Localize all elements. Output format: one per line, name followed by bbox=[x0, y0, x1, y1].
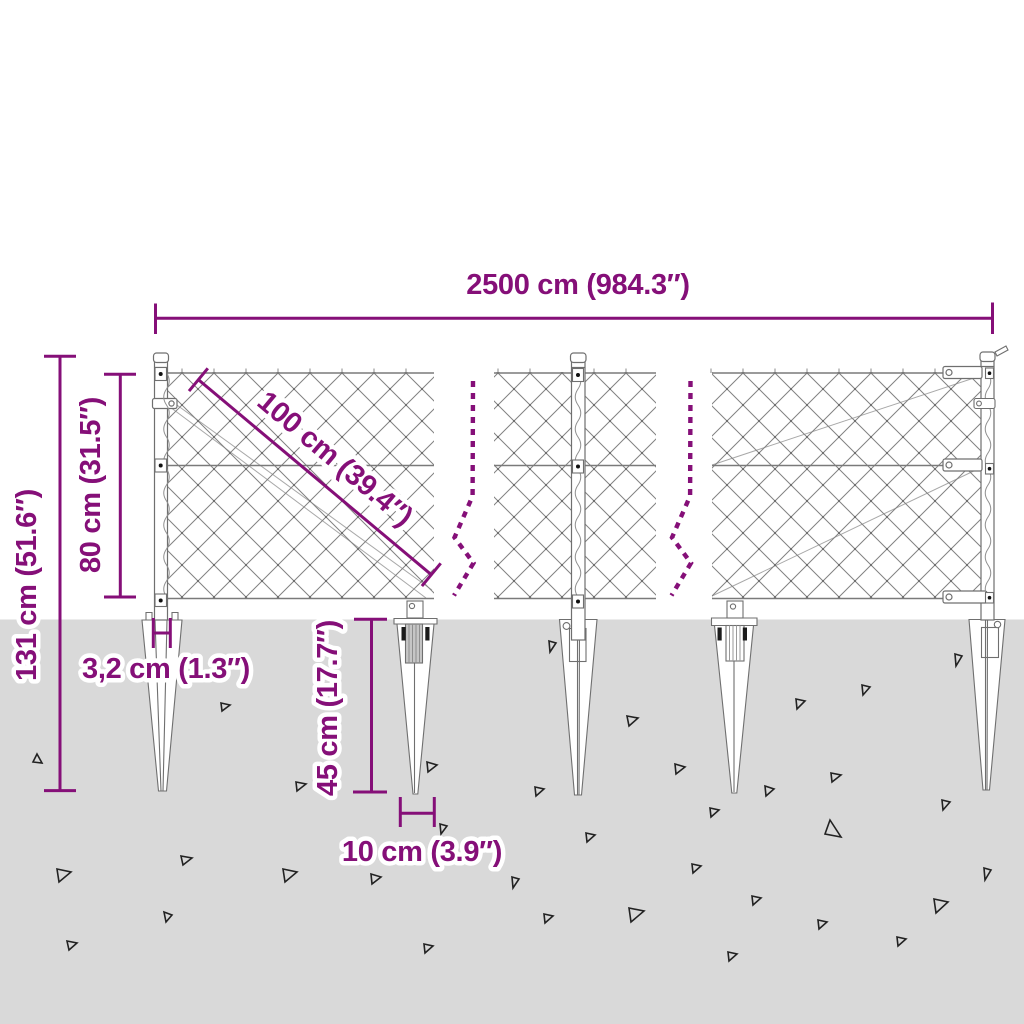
svg-text:45 cm (17.7″): 45 cm (17.7″) bbox=[312, 620, 344, 796]
svg-text:131 cm (51.6″): 131 cm (51.6″) bbox=[11, 489, 43, 681]
svg-text:80 cm (31.5″): 80 cm (31.5″) bbox=[75, 397, 107, 573]
svg-text:10 cm (3.9″): 10 cm (3.9″) bbox=[342, 836, 502, 868]
svg-text:3,2 cm (1.3″): 3,2 cm (1.3″) bbox=[82, 653, 250, 685]
svg-text:2500 cm (984.3″): 2500 cm (984.3″) bbox=[466, 269, 690, 301]
